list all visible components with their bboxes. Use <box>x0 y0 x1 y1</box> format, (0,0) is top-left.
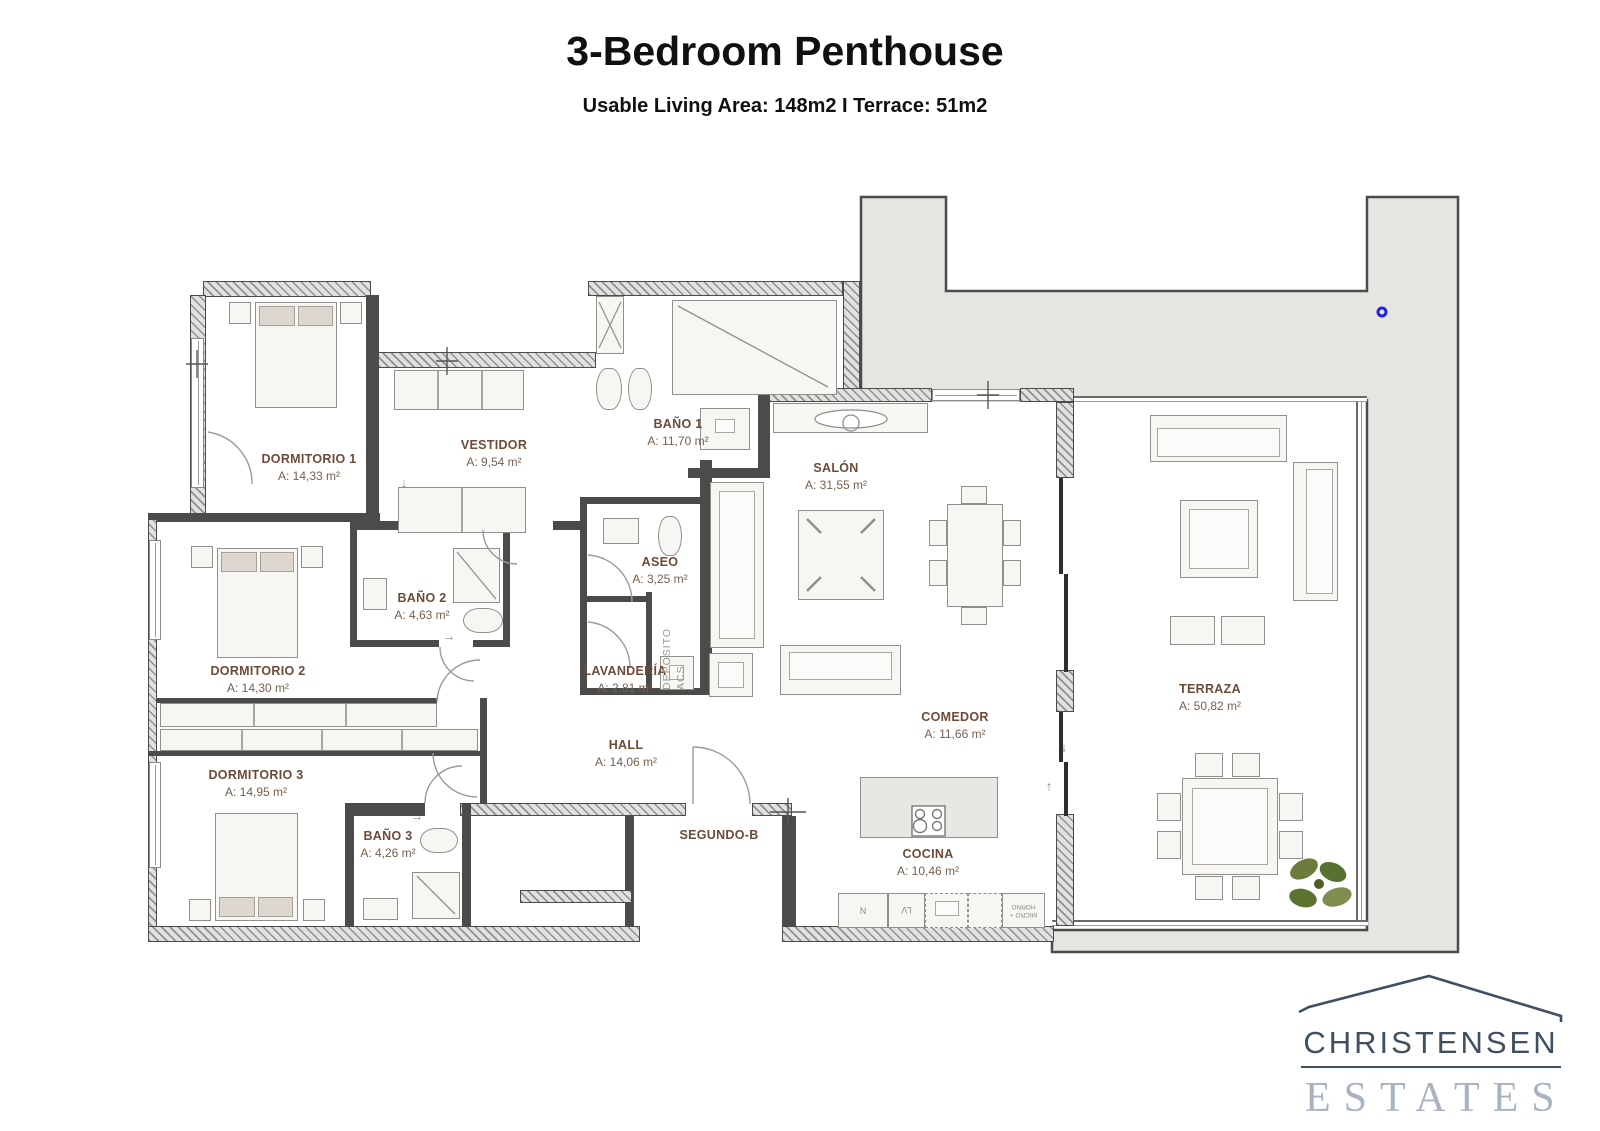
door-arc-lavanderia <box>588 622 630 668</box>
room-name: VESTIDOR <box>461 438 527 452</box>
door-arc-entrance <box>693 747 750 804</box>
brand-name: CHRISTENSEN <box>1295 1025 1567 1061</box>
room-area: A: 14,95 m² <box>208 786 303 800</box>
room-label-hall: HALLA: 14,06 m² <box>595 738 657 770</box>
room-name: DORMITORIO 2 <box>210 664 305 678</box>
room-label-cocina: COCINAA: 10,46 m² <box>897 847 959 879</box>
room-label-comedor: COMEDORA: 11,66 m² <box>921 710 988 742</box>
room-label-dormitorio-3: DORMITORIO 3A: 14,95 m² <box>208 768 303 800</box>
kitchen-label-oven: MICRO + HORNO <box>1004 895 1043 926</box>
kitchen-label-dishwasher: LV <box>888 893 925 928</box>
room-label-bano-1: BAÑO 1A: 11,70 m² <box>647 417 708 449</box>
door-arc-dormitorio1 <box>208 432 252 484</box>
room-area: A: 50,82 m² <box>1179 700 1241 714</box>
hob-icon <box>912 806 945 836</box>
logo-divider <box>1301 1066 1561 1068</box>
room-area: A: 31,55 m² <box>805 479 867 493</box>
door-arc-dormitorio3 <box>433 753 477 797</box>
right-arrow-icon: → <box>411 809 424 824</box>
fridge-label: N <box>860 906 867 916</box>
room-name: BAÑO 1 <box>647 417 708 431</box>
room-name: BAÑO 2 <box>394 591 449 605</box>
room-name: DORMITORIO 3 <box>208 768 303 782</box>
door-arc-bano3 <box>425 766 462 803</box>
door-arc-bano2 <box>440 647 474 681</box>
utility-label-deposito-acs: DEPOSITO ACS <box>652 594 696 690</box>
kitchen-label-fridge: N <box>838 893 888 928</box>
unit-label: SEGUNDO-B <box>679 828 758 842</box>
room-area: A: 9,54 m² <box>461 456 527 470</box>
brand-logo: CHRISTENSEN ESTATES <box>1295 970 1567 1122</box>
room-name: SALÓN <box>805 461 867 475</box>
dishwasher-label: LV <box>901 906 911 916</box>
room-name: HALL <box>595 738 657 752</box>
shaft-x-icon <box>599 302 621 348</box>
room-label-terraza: TERRAZAA: 50,82 m² <box>1179 682 1241 714</box>
floor-plan: DORMITORIO 1A: 14,33 m² VESTIDORA: 9,54 … <box>0 0 1600 1131</box>
room-area: A: 11,66 m² <box>921 728 988 742</box>
door-arc-vestidor <box>483 530 517 564</box>
room-label-dormitorio-2: DORMITORIO 2A: 14,30 m² <box>210 664 305 696</box>
room-label-dormitorio-1: DORMITORIO 1A: 14,33 m² <box>261 452 356 484</box>
utility-line1: DEPOSITO <box>661 594 673 690</box>
tv-icon <box>815 410 887 431</box>
room-label-bano-2: BAÑO 2A: 4,63 m² <box>394 591 449 623</box>
plan-linework <box>0 0 1600 1131</box>
floorplan-document: { "header": { "title": "3-Bedroom Pentho… <box>0 0 1600 1131</box>
room-name: BAÑO 3 <box>360 829 415 843</box>
room-label-aseo: ASEOA: 3,25 m² <box>632 555 687 587</box>
utility-line2: ACS <box>675 594 687 690</box>
room-name: TERRAZA <box>1179 682 1241 696</box>
room-area: A: 10,46 m² <box>897 865 959 879</box>
down-arrow-icon: ↓ <box>401 476 408 491</box>
room-name: ASEO <box>632 555 687 569</box>
room-name: DORMITORIO 1 <box>261 452 356 466</box>
room-name: COCINA <box>897 847 959 861</box>
room-label-salon: SALÓNA: 31,55 m² <box>805 461 867 493</box>
oven-label: MICRO + HORNO <box>1004 903 1043 918</box>
shower-glass-lines <box>417 306 828 914</box>
brand-subname: ESTATES <box>1295 1074 1567 1122</box>
location-marker-icon <box>1378 308 1386 316</box>
room-area: A: 11,70 m² <box>647 435 708 449</box>
right-arrow-icon: → <box>443 629 456 644</box>
room-area: A: 4,63 m² <box>394 609 449 623</box>
room-area: A: 14,30 m² <box>210 682 305 696</box>
room-area: A: 3,25 m² <box>632 573 687 587</box>
roof-icon <box>1295 970 1567 1022</box>
room-area: A: 14,06 m² <box>595 756 657 770</box>
plant-icon <box>1287 854 1355 910</box>
up-arrow-icon: ↑ <box>1046 779 1053 794</box>
door-arc-aseo <box>588 555 632 602</box>
down-arrow-icon: ↓ <box>1061 740 1068 755</box>
room-name: COMEDOR <box>921 710 988 724</box>
room-label-bano-3: BAÑO 3A: 4,26 m² <box>360 829 415 861</box>
rug-corner-marks <box>807 519 875 591</box>
room-area: A: 4,26 m² <box>360 847 415 861</box>
room-label-vestidor: VESTIDORA: 9,54 m² <box>461 438 527 470</box>
room-area: A: 14,33 m² <box>261 470 356 484</box>
